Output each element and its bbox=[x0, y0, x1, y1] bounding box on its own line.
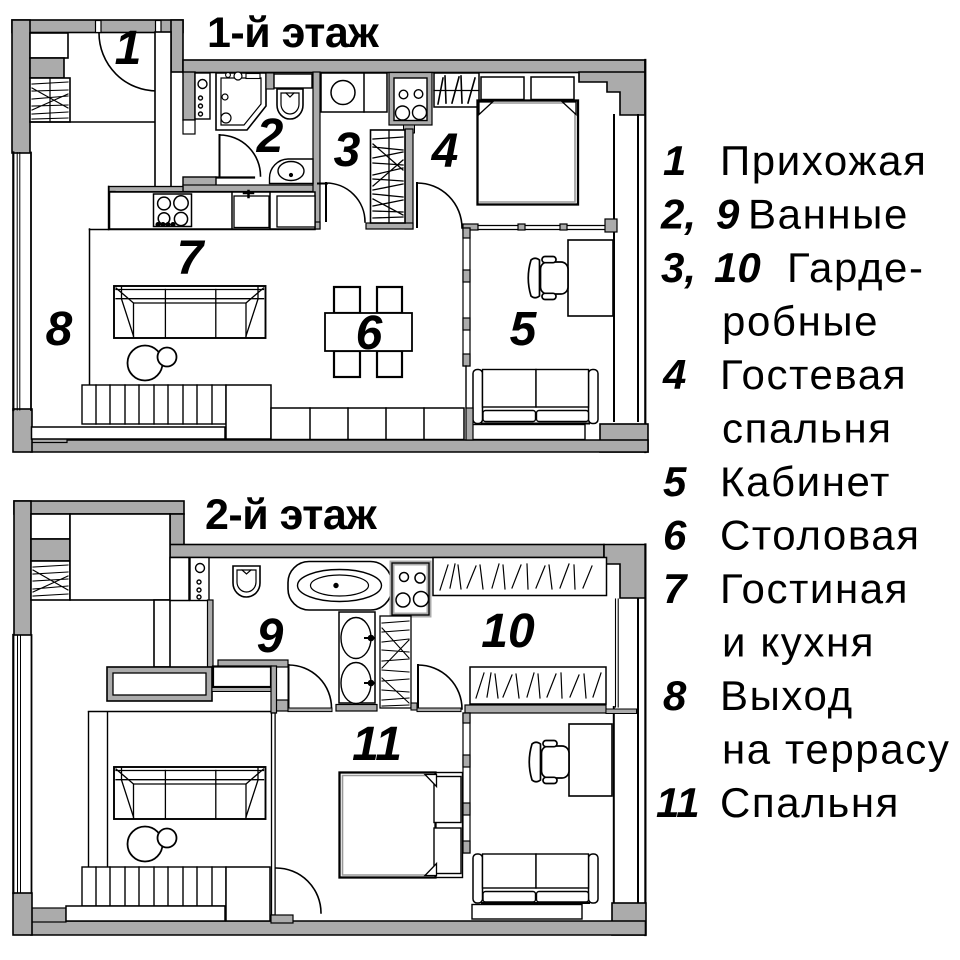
svg-text:6: 6 bbox=[663, 512, 687, 559]
svg-text:5: 5 bbox=[663, 458, 687, 505]
svg-text:3: 3 bbox=[334, 124, 361, 177]
svg-text:Ванные: Ванные bbox=[748, 191, 909, 238]
svg-text:Выход: Выход bbox=[720, 672, 854, 719]
svg-text:2: 2 bbox=[256, 110, 284, 163]
svg-text:Гарде-: Гарде- bbox=[787, 244, 925, 291]
svg-text:8: 8 bbox=[46, 303, 73, 356]
svg-text:1: 1 bbox=[115, 22, 142, 75]
svg-text:9: 9 bbox=[716, 191, 740, 238]
svg-text:Столовая: Столовая bbox=[720, 512, 921, 559]
svg-text:9: 9 bbox=[257, 610, 284, 663]
svg-text:7: 7 bbox=[663, 565, 688, 612]
svg-text:Прихожая: Прихожая bbox=[720, 137, 927, 184]
svg-text:Гостиная: Гостиная bbox=[720, 565, 909, 612]
svg-text:4: 4 bbox=[431, 125, 459, 178]
svg-text:робные: робные bbox=[722, 298, 879, 345]
svg-text:10: 10 bbox=[481, 605, 535, 658]
svg-text:5: 5 bbox=[510, 303, 538, 356]
svg-text:спальня: спальня bbox=[722, 405, 893, 452]
svg-text:1: 1 bbox=[663, 137, 686, 184]
svg-text:Кабинет: Кабинет bbox=[720, 458, 891, 505]
svg-text:4: 4 bbox=[662, 351, 686, 398]
svg-text:Спальня: Спальня bbox=[720, 779, 900, 826]
svg-text:6: 6 bbox=[356, 307, 383, 360]
svg-text:11: 11 bbox=[352, 718, 402, 771]
svg-text:и кухня: и кухня bbox=[722, 619, 875, 666]
svg-text:11: 11 bbox=[656, 779, 700, 826]
svg-text:2,: 2, bbox=[660, 191, 696, 238]
svg-text:8: 8 bbox=[663, 672, 687, 719]
svg-text:Гостевая: Гостевая bbox=[720, 351, 907, 398]
svg-text:3,: 3, bbox=[661, 244, 696, 291]
svg-text:7: 7 bbox=[177, 232, 206, 285]
svg-text:на террасу: на террасу bbox=[722, 726, 950, 773]
svg-text:10: 10 bbox=[714, 244, 761, 291]
svg-text:1-й этаж: 1-й этаж bbox=[207, 9, 379, 57]
svg-text:2-й этаж: 2-й этаж bbox=[205, 491, 377, 539]
